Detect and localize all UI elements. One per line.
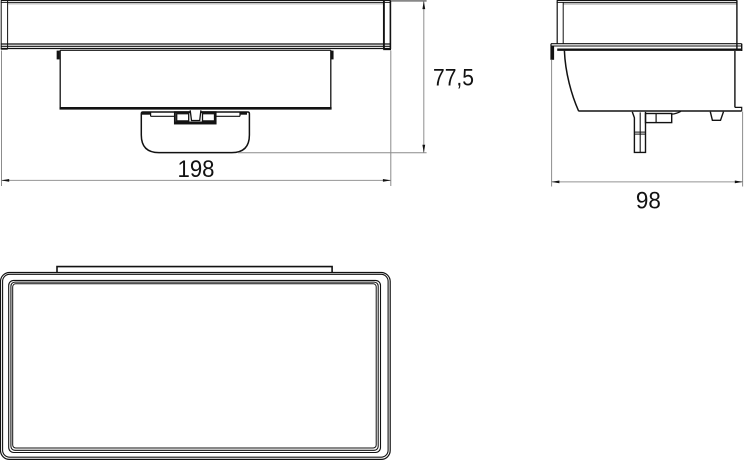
svg-text:198: 198 bbox=[178, 156, 215, 183]
svg-text:77,5: 77,5 bbox=[433, 65, 474, 92]
svg-text:98: 98 bbox=[636, 188, 661, 215]
